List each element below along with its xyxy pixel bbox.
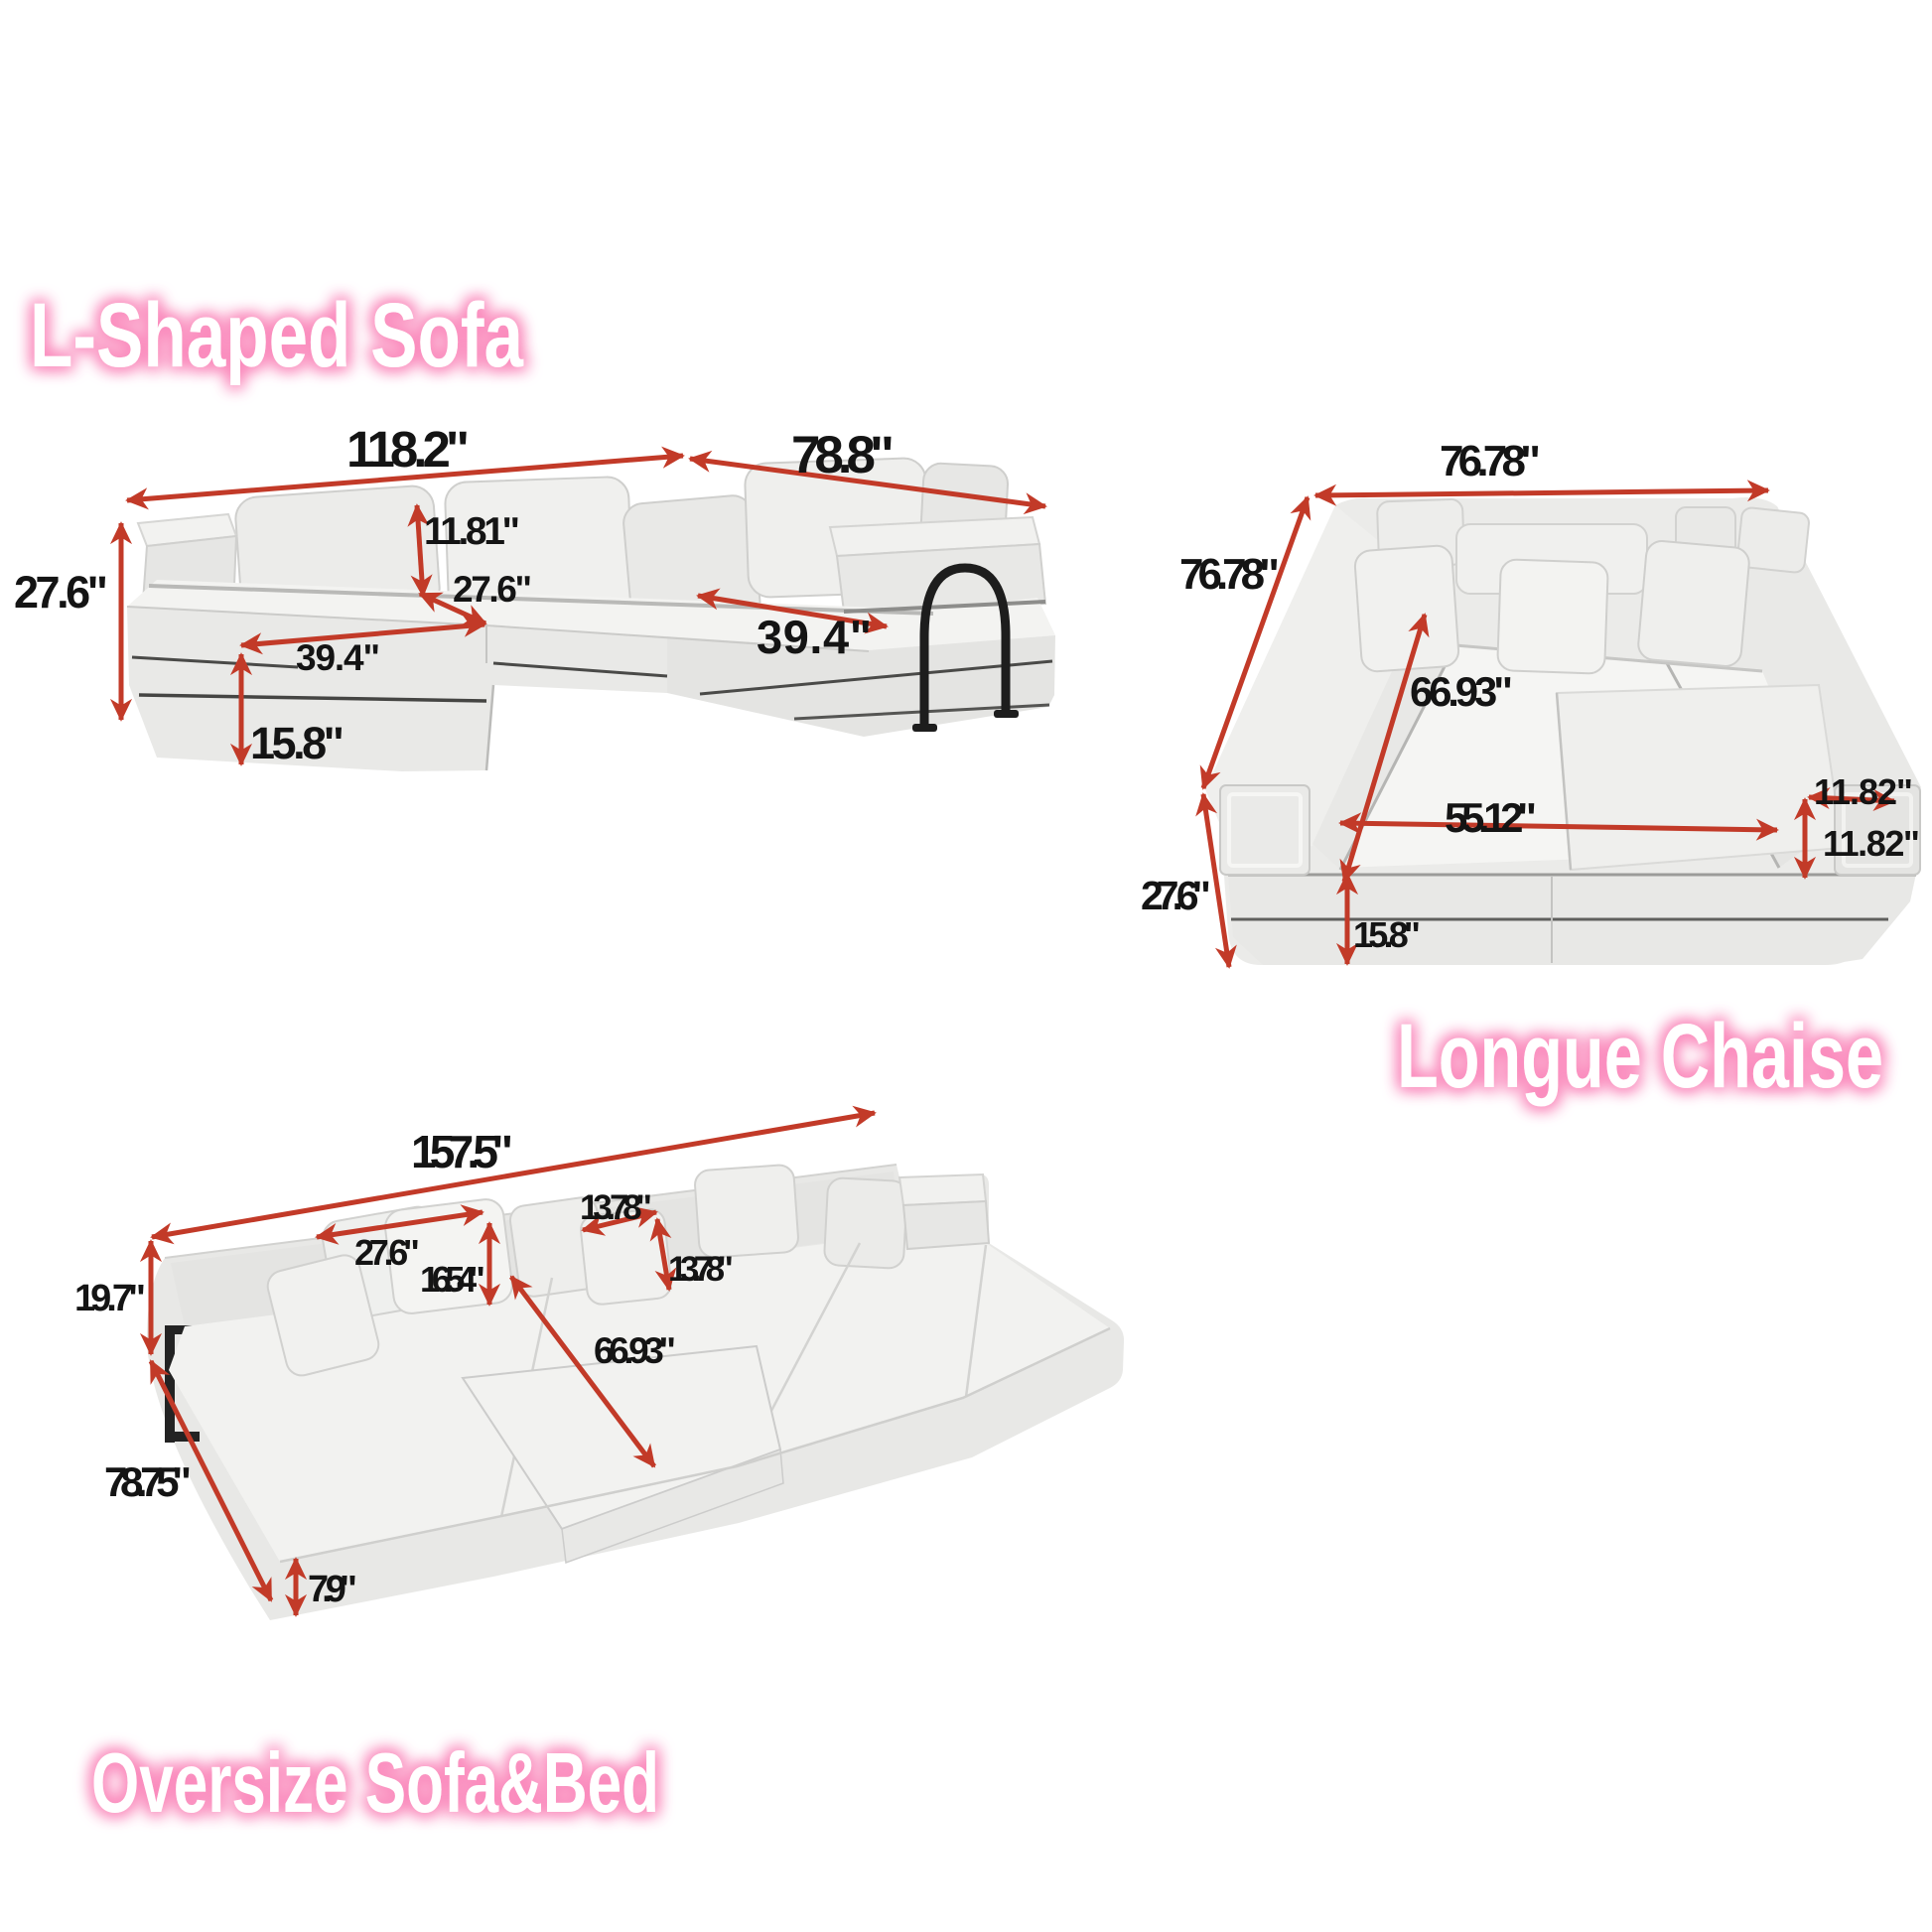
svg-text:11.81": 11.81" — [424, 510, 520, 553]
svg-text:13.78": 13.78" — [668, 1250, 734, 1289]
svg-text:78.75": 78.75" — [104, 1458, 192, 1505]
svg-text:15.8": 15.8" — [250, 718, 345, 768]
svg-text:7.9": 7.9" — [308, 1569, 357, 1610]
svg-text:L-Shaped Sofa: L-Shaped Sofa — [30, 285, 524, 386]
svg-text:11.82": 11.82" — [1814, 771, 1913, 812]
svg-text:16.54": 16.54" — [420, 1259, 485, 1300]
svg-text:15.8": 15.8" — [1353, 914, 1421, 955]
svg-text:27.6": 27.6" — [354, 1232, 420, 1273]
svg-text:76.78": 76.78" — [1440, 437, 1541, 485]
svg-text:78.8": 78.8" — [791, 426, 895, 484]
svg-text:157.5": 157.5" — [411, 1126, 513, 1177]
svg-text:19.7": 19.7" — [74, 1278, 146, 1319]
svg-text:66.93": 66.93" — [594, 1330, 676, 1371]
svg-text:Longue Chaise: Longue Chaise — [1397, 1006, 1883, 1107]
svg-text:27.6": 27.6" — [14, 567, 108, 618]
svg-text:27.6": 27.6" — [1141, 873, 1211, 918]
svg-text:76.78": 76.78" — [1179, 550, 1280, 599]
svg-text:55.12": 55.12" — [1445, 794, 1537, 841]
svg-text:11.82": 11.82" — [1823, 823, 1920, 864]
svg-text:13.78": 13.78" — [580, 1188, 652, 1227]
svg-text:39.4": 39.4" — [757, 611, 872, 663]
svg-text:27.6": 27.6" — [453, 569, 532, 610]
svg-text:39.4": 39.4" — [296, 637, 380, 678]
svg-text:Oversize Sofa&Bed: Oversize Sofa&Bed — [91, 1736, 659, 1831]
svg-text:66.93": 66.93" — [1410, 668, 1513, 715]
svg-text:118.2": 118.2" — [346, 421, 470, 478]
